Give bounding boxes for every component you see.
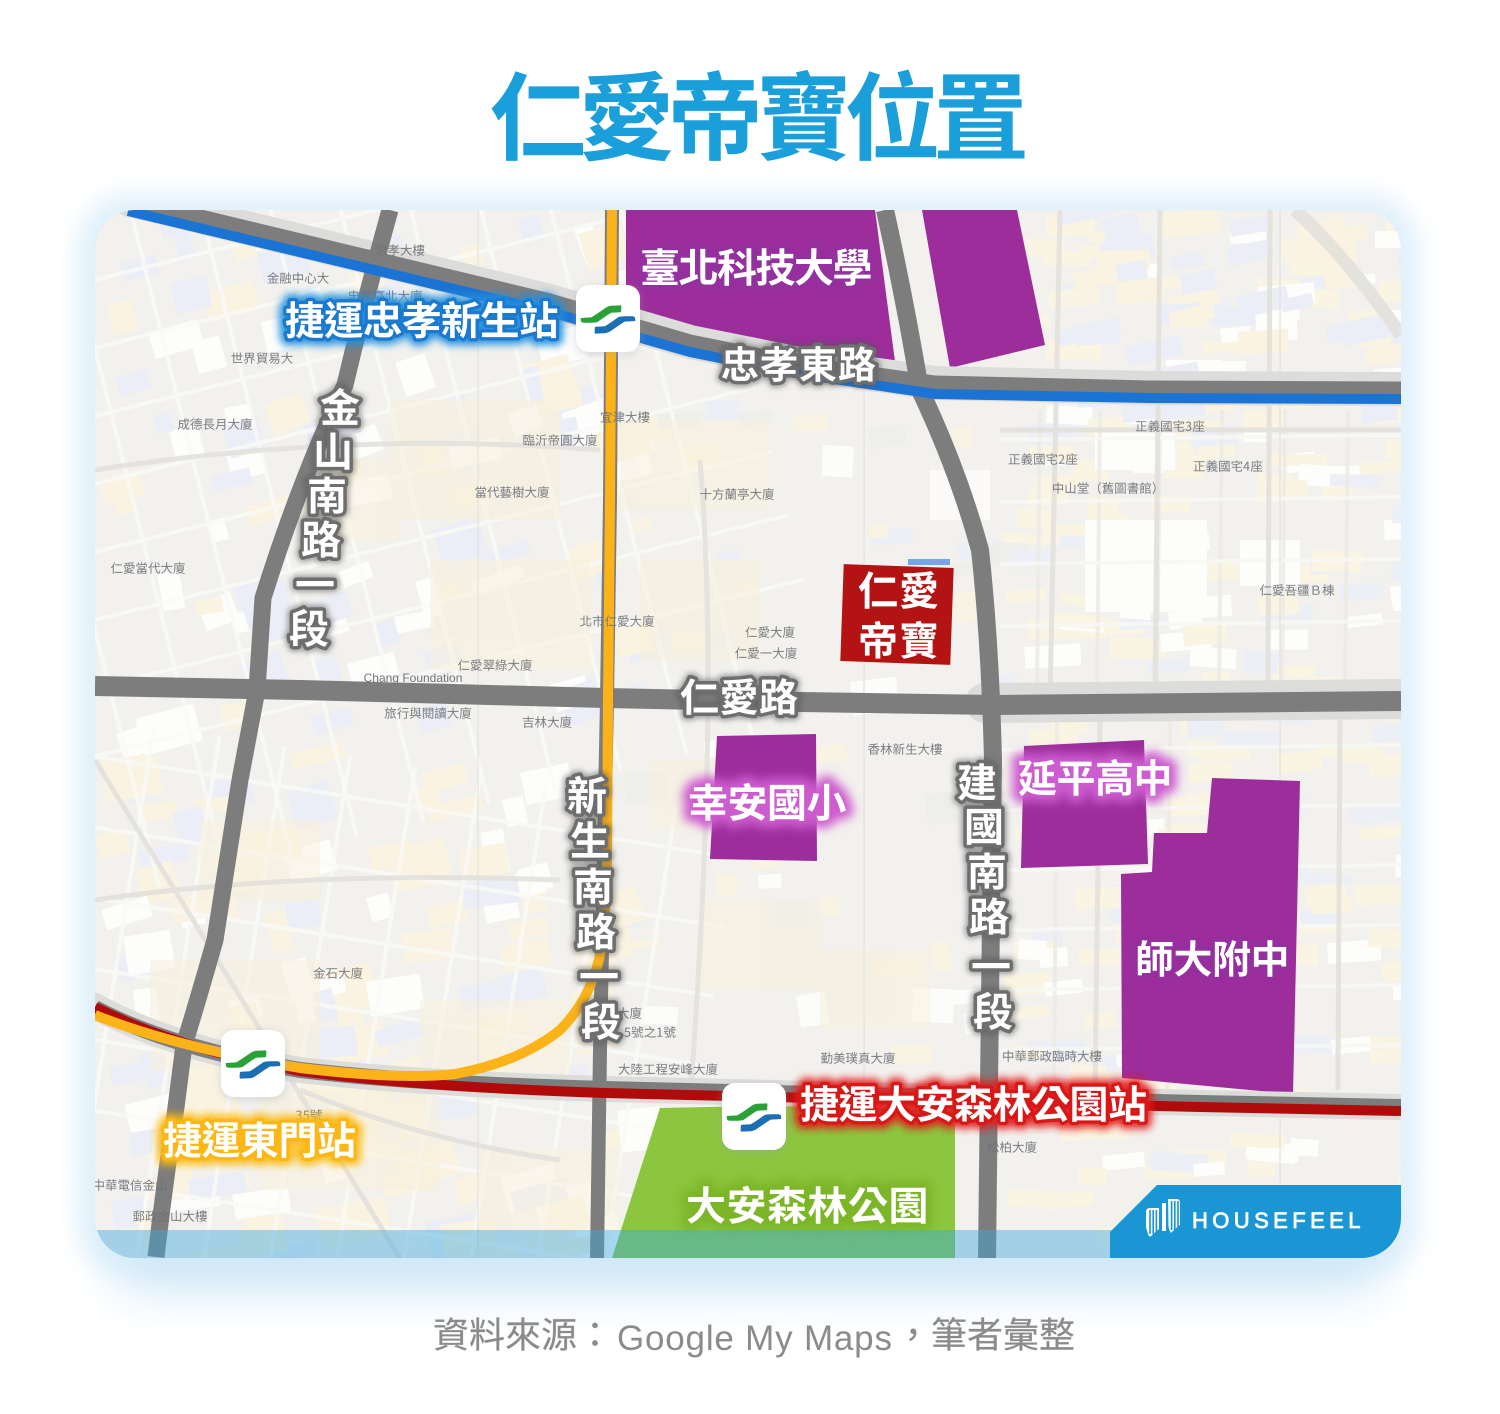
svg-text:HOUSEFEEL: HOUSEFEEL: [1192, 1208, 1365, 1233]
svg-text:Google My Maps: Google My Maps: [617, 1319, 893, 1358]
svg-text:Chang Foundation: Chang Foundation: [364, 671, 463, 685]
